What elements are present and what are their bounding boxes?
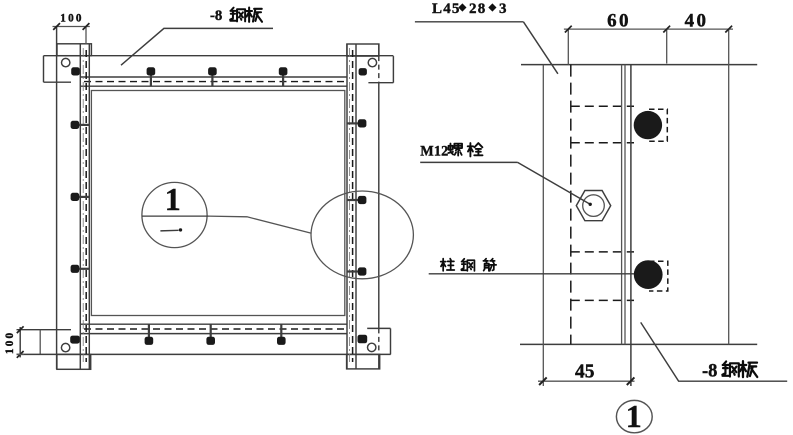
svg-text:100: 100 xyxy=(4,331,16,354)
svg-text:-8: -8 xyxy=(702,362,717,382)
svg-text:40: 40 xyxy=(685,11,709,32)
svg-text:1: 1 xyxy=(165,181,181,217)
svg-text:L45: L45 xyxy=(432,1,461,17)
svg-text:100: 100 xyxy=(60,13,83,25)
svg-text:3: 3 xyxy=(499,1,507,17)
svg-text:1: 1 xyxy=(626,398,642,434)
svg-text:-8: -8 xyxy=(210,8,222,24)
svg-text:60: 60 xyxy=(607,11,631,32)
svg-text:45: 45 xyxy=(575,362,595,383)
svg-text:28: 28 xyxy=(469,1,486,17)
svg-text:M12: M12 xyxy=(420,143,448,159)
